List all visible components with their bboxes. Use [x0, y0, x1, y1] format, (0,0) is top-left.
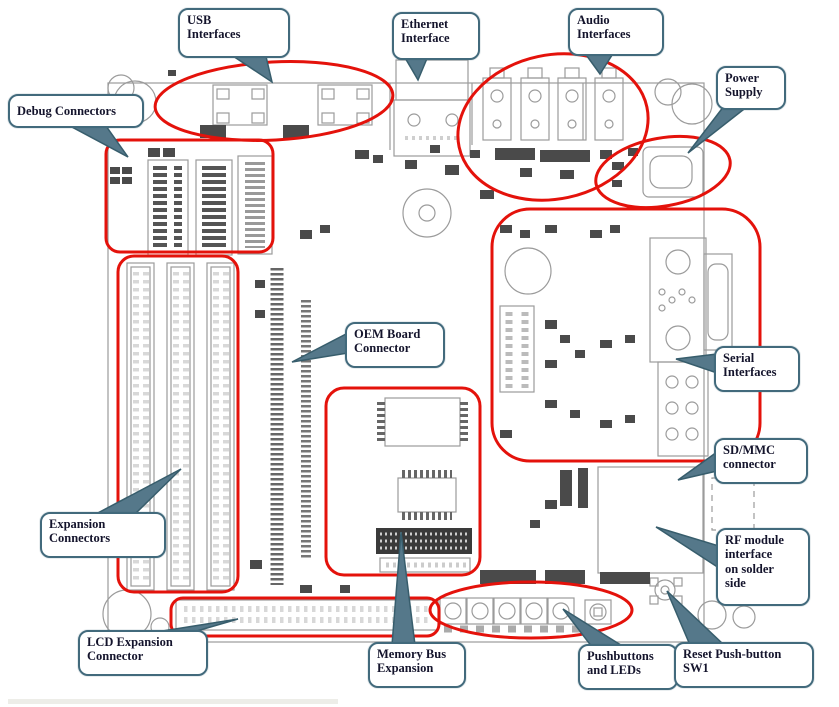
callout-pushbuttons-and-leds: Pushbuttons and LEDs — [578, 644, 678, 690]
callout-serial-interfaces: Serial Interfaces — [714, 346, 800, 392]
callout-lcd-expansion-connector: LCD Expansion Connector — [78, 630, 208, 676]
callout-expansion-connectors: Expansion Connectors — [40, 512, 166, 558]
serial-db9-connector — [650, 238, 706, 362]
callout-tail — [667, 591, 724, 645]
callout-usb-interfaces: USB Interfaces — [178, 8, 290, 58]
solder-side-connector-dashed — [712, 478, 754, 530]
usb-region-highlight — [153, 56, 395, 146]
callout-tail — [676, 354, 717, 373]
callout-sdmmc-connector: SD/MMC connector — [714, 438, 808, 484]
callout-rf-module-interface: RF module interface on solder side — [716, 528, 810, 606]
usb-connector-2 — [318, 85, 372, 125]
ethernet-jack — [396, 60, 468, 100]
callout-tail — [292, 333, 348, 362]
callout-debug-connectors: Debug Connectors — [8, 94, 144, 128]
callout-ethernet-interface: Ethernet Interface — [392, 12, 480, 60]
rf-module-area — [598, 467, 703, 573]
callout-reset-push-button-sw1: Reset Push-button SW1 — [674, 642, 814, 688]
pcb-annotated-diagram: USB Interfaces Ethernet Interface Audio … — [0, 0, 839, 707]
audio-jacks — [483, 68, 623, 140]
oem-board-connector-detail — [277, 268, 306, 585]
callout-power-supply: Power Supply — [716, 66, 786, 110]
callout-audio-interfaces: Audio Interfaces — [568, 8, 664, 56]
callout-tail — [656, 527, 719, 568]
usb-connector-1 — [213, 85, 267, 125]
power-barrel-jack — [643, 147, 703, 197]
audio-region-highlight — [444, 37, 662, 218]
memory-bus-detail — [376, 398, 472, 572]
debug-connectors-detail — [148, 156, 272, 255]
cropped-caption-smudge — [8, 699, 338, 704]
callout-oem-board-connector: OEM Board Connector — [345, 322, 445, 368]
callout-memory-bus-expansion: Memory Bus Expansion — [368, 642, 466, 688]
